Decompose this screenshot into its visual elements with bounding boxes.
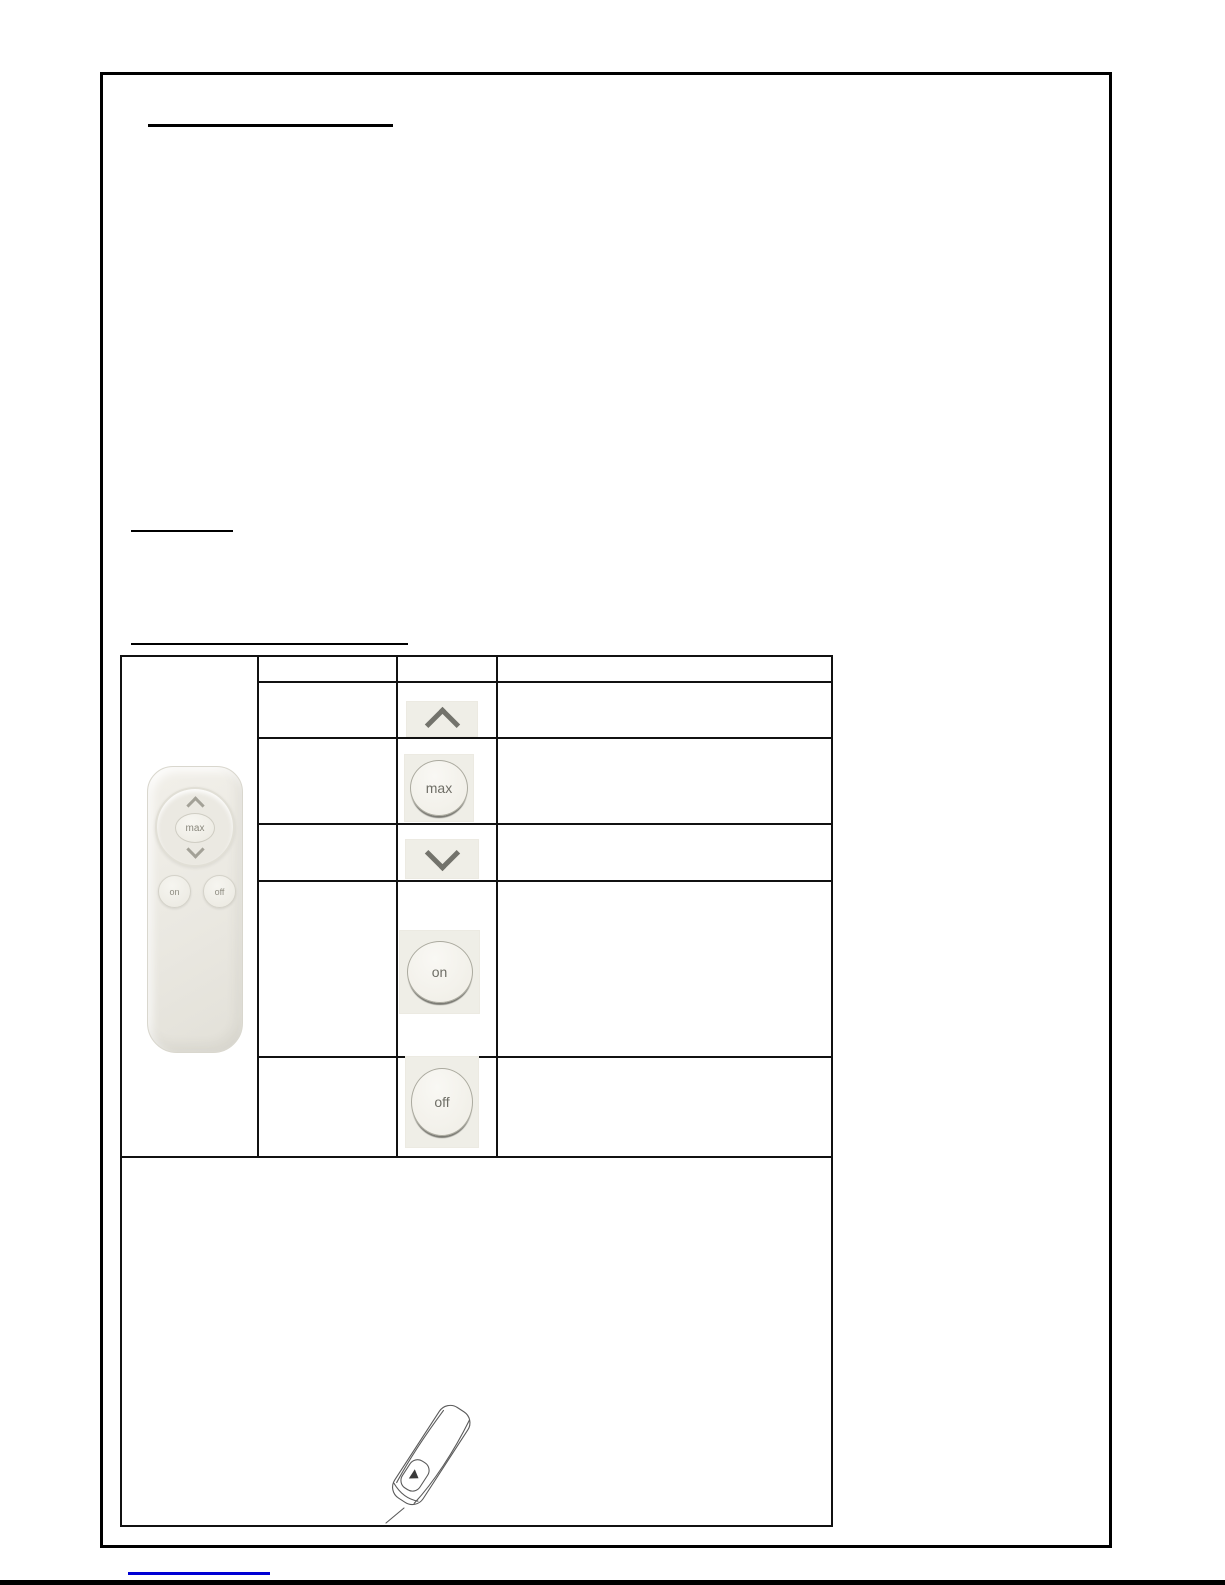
bottom-edge-strip [0,1580,1225,1585]
heading-underline-middle [131,530,233,532]
on-button-icon: on [407,941,473,1003]
max-button: max [175,813,215,843]
max-icon-label: max [426,780,452,796]
table-icon-down [406,840,478,878]
remote-control-photo: max on off [147,766,243,1053]
remote-dimmer-pad: max [155,787,235,867]
heading-underline-table-title [131,643,408,645]
table-icon-up [407,702,477,736]
footer-link[interactable] [128,1572,270,1575]
chevron-down-icon [186,840,204,858]
off-button-label: off [215,887,225,897]
max-button-icon: max [410,760,468,816]
manual-page: max on off max on off [0,0,1225,1585]
table-icon-off: off [406,1057,478,1147]
table-column-divider-3 [496,655,498,1158]
on-button: on [158,875,191,908]
table-row-divider-max [257,823,833,825]
off-button-icon: off [411,1068,473,1136]
table-row-divider-header [257,681,833,683]
table-icon-max: max [405,755,473,821]
on-button-label: on [169,887,179,897]
off-icon-label: off [434,1094,449,1110]
transmitter-sketch-illustration [378,1398,490,1526]
table-column-divider-2 [396,655,398,1158]
table-icon-on: on [400,931,479,1013]
table-row-divider-on [257,1056,833,1058]
table-column-divider-1 [257,655,259,1158]
chevron-down-icon [424,835,459,870]
max-button-label: max [186,823,205,834]
table-row-divider-down [257,880,833,882]
heading-underline-top [148,124,393,127]
off-button: off [203,875,236,908]
table-row-divider-up [257,737,833,739]
chevron-up-icon [186,796,204,814]
on-icon-label: on [432,964,448,980]
